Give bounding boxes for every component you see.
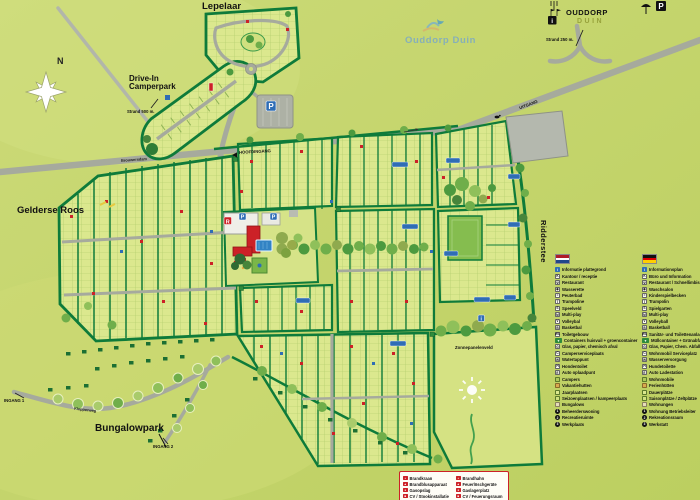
fire-legend-german: + Brandhahn ▲ Feuerlöschgeräte ● Gaslage… bbox=[456, 475, 505, 499]
legend-items-dutch: i Informatie plattegrond K Kantoor / rec… bbox=[555, 267, 641, 428]
lepelaar-green-island bbox=[241, 33, 265, 51]
fire-legend-item: ▲ Brandblusapparaat bbox=[403, 481, 452, 487]
legend-item-icon: S bbox=[642, 306, 647, 311]
legend-item-icon: M bbox=[555, 312, 560, 317]
legend-item-icon: T bbox=[555, 299, 560, 304]
legend-item: WC Sanitär- und Toilettenanlage bbox=[642, 331, 700, 337]
info-black-icon: i bbox=[548, 16, 557, 25]
legend-item-label: Trampolin bbox=[649, 299, 669, 304]
legend-item-label: Camperserviceplaats bbox=[562, 351, 604, 356]
fire-legend-icon: + bbox=[456, 476, 461, 481]
svg-text:P: P bbox=[241, 215, 245, 221]
legend-item-icon: H bbox=[555, 364, 560, 369]
legend-item-icon: E bbox=[642, 370, 647, 375]
sun-icon bbox=[459, 377, 485, 403]
campsite-map: P P P R i i P bbox=[0, 0, 700, 500]
brand-watermark: Ouddorp Duin bbox=[405, 36, 476, 46]
legend-item: 3 Werkplaats bbox=[555, 421, 641, 427]
legend-item-icon: T bbox=[642, 299, 647, 304]
legend-item-icon: S bbox=[555, 306, 560, 311]
legend-item-label: Büro und Information bbox=[649, 274, 691, 279]
fire-legend-icon: ■ bbox=[403, 494, 408, 499]
legend-item: G Glas, Papier, Chem. Abfall bbox=[642, 344, 700, 350]
area-label-camperpark: Drive-In Camperpark bbox=[129, 75, 176, 92]
parking-black-icon: P bbox=[656, 1, 666, 11]
legend-item-label: Hondentoilet bbox=[562, 364, 587, 369]
entrance1-label: INGANG 1 bbox=[4, 399, 24, 403]
legend-item-label: Kinderspielbecken bbox=[649, 293, 686, 298]
legend-item: ▼ Müllcontainer + Grünabfall bbox=[642, 337, 700, 343]
legend-item-label: Rekreationsraum bbox=[649, 415, 683, 420]
fire-legend-icon: ▲ bbox=[403, 482, 408, 487]
legend-item-label: Dauerplätze bbox=[649, 390, 673, 395]
area-label-gelderse-roos: Gelderse Roos bbox=[17, 206, 84, 216]
legend-item-label: Volleyball bbox=[649, 319, 668, 324]
legend-item-label: Saisonplätze / Zeltplätze bbox=[649, 396, 697, 401]
legend-item-icon: 1 bbox=[555, 409, 560, 414]
legend-item-icon: C bbox=[555, 351, 560, 356]
parking-glyph: P bbox=[268, 102, 274, 111]
legend-item-icon: K bbox=[555, 274, 560, 279]
legend-item-label: Ferienhütten bbox=[649, 383, 674, 388]
legend-item: 3 Werkstatt bbox=[642, 421, 700, 427]
swimming-pool bbox=[256, 240, 272, 251]
legend-item-icon: B bbox=[642, 325, 647, 330]
legend-item-label: Basketbal bbox=[562, 325, 582, 330]
park-name-top: OUDDORP bbox=[566, 9, 608, 17]
legend-item-icon: 3 bbox=[642, 422, 647, 427]
legend-item-label: Toiletgebouw bbox=[562, 332, 588, 337]
legend-item-icon bbox=[555, 396, 560, 401]
legend-item: ▼ Containers huisvuil + groencontainer bbox=[555, 337, 641, 343]
legend-item-label: Wasserette bbox=[562, 287, 584, 292]
legend-item-label: Werkstatt bbox=[649, 422, 668, 427]
roundabout bbox=[246, 64, 257, 75]
fire-legend-label: Brandhahn bbox=[463, 476, 485, 481]
legend-item-label: Basketball bbox=[649, 325, 670, 330]
legend-item-label: Kantoor / receptie bbox=[562, 274, 597, 279]
fire-legend-label: Brandblusapparaat bbox=[410, 482, 447, 487]
legend-item-label: Hundetoilette bbox=[649, 364, 676, 369]
legend-item: Saisonplätze / Zeltplätze bbox=[642, 395, 700, 401]
legend-item-label: Multi-play bbox=[562, 312, 581, 317]
reception-icon-map: R bbox=[224, 217, 232, 225]
park-name-bottom: DUIN bbox=[577, 18, 604, 25]
legend-item-label: Seizoenplaatsen / kampeerplaats bbox=[562, 396, 627, 401]
legend-item-icon bbox=[642, 396, 647, 401]
legend-item-label: Peuterbad bbox=[562, 293, 582, 298]
legend-item-icon: i bbox=[555, 267, 560, 272]
fire-legend-item: ■ CV / Stookinstallatie bbox=[403, 493, 452, 499]
fire-legend-item: ■ CV / Feuerungsraum bbox=[456, 493, 505, 499]
legend-item-icon bbox=[555, 383, 560, 388]
legend-item-icon: 2 bbox=[555, 415, 560, 420]
beach-distance-500-label: Strand 500 m. bbox=[127, 110, 154, 114]
legend-item-label: Auto Ladestation bbox=[649, 370, 683, 375]
legend-item-label: Watertappunt bbox=[562, 357, 589, 362]
legend-item-label: Containers huisvuil + groencontainer bbox=[564, 338, 637, 343]
legend-item-label: Wasserversorgung bbox=[649, 357, 687, 362]
legend-item-icon: WC bbox=[642, 332, 647, 337]
legend-item-icon: ◉ bbox=[555, 287, 560, 292]
area-label-solar-field: Zonnepanelenveld bbox=[455, 346, 493, 351]
legend-item-icon: 3 bbox=[555, 422, 560, 427]
legend-item-label: Informatie plattegrond bbox=[562, 267, 606, 272]
legend-item-label: Wohnung Betriebsleiter bbox=[649, 409, 696, 414]
legend-items-german: i Informationsplan K Büro und Informatio… bbox=[642, 267, 700, 428]
legend-item-label: Müllcontainer + Grünabfall bbox=[651, 338, 700, 343]
parking-area-ne bbox=[506, 111, 568, 163]
svg-text:P: P bbox=[272, 215, 276, 221]
legend-item-label: Speelveld bbox=[562, 306, 581, 311]
legend-item-label: Spielgarten bbox=[649, 306, 672, 311]
legend-item-label: Beheerderswoning bbox=[562, 409, 599, 414]
legend-item-label: Sanitär- und Toilettenanlage bbox=[649, 332, 700, 337]
legend-dutch: i Informatie plattegrond K Kantoor / rec… bbox=[555, 254, 641, 427]
legend-item-icon bbox=[642, 402, 647, 407]
legend-item-icon: B bbox=[555, 325, 560, 330]
legend-item-icon: 2 bbox=[642, 415, 647, 420]
legend-item-label: Restaurant bbox=[562, 280, 584, 285]
legend-item-icon: Ψ bbox=[555, 280, 560, 285]
fire-safety-legend: + Brandkraan ▲ Brandblusapparaat ● Gasop… bbox=[399, 471, 509, 500]
legend-item-icon: ≈ bbox=[555, 293, 560, 298]
legend-item-icon bbox=[555, 402, 560, 407]
area-label-ridderstee: Ridderstee bbox=[539, 220, 547, 263]
legend-item-label: Volleybal bbox=[562, 319, 580, 324]
compass-north-label: N bbox=[57, 57, 64, 66]
legend-item-icon: K bbox=[642, 274, 647, 279]
fire-legend-icon: ● bbox=[403, 488, 408, 493]
legend-item-icon: WC bbox=[555, 332, 560, 337]
area-label-bungalowpark: Bungalowpark bbox=[95, 424, 164, 435]
legend-item-label: Informationsplan bbox=[649, 267, 683, 272]
legend-item-icon bbox=[642, 390, 647, 395]
legend-item-icon: Ψ bbox=[642, 280, 647, 285]
fire-legend-label: Gaslagerplatz bbox=[463, 488, 490, 493]
legend-item: K Büro und Information bbox=[642, 273, 700, 279]
entrance2-label: INGANG 2 bbox=[153, 445, 173, 449]
fire-legend-label: CV / Feuerungsraum bbox=[463, 494, 503, 499]
legend-item-label: Auto oplaadpunt bbox=[562, 370, 595, 375]
legend-item-icon: ≈ bbox=[642, 293, 647, 298]
legend-item-icon: ▼ bbox=[642, 338, 649, 343]
fire-legend-label: Feuerlöschgeräte bbox=[463, 482, 497, 487]
legend-item-icon: G bbox=[642, 344, 647, 349]
legend-item-icon: V bbox=[642, 319, 647, 324]
legend-item-label: Waschsalon bbox=[649, 287, 673, 292]
info-icon-map: i bbox=[478, 315, 485, 323]
legend-item-icon bbox=[555, 390, 560, 395]
legend-item-icon: M bbox=[642, 312, 647, 317]
legend-item-icon: V bbox=[555, 319, 560, 324]
fire-legend-label: CV / Stookinstallatie bbox=[410, 494, 449, 499]
parking-icon-facilities-2: P bbox=[270, 213, 277, 221]
legend-item-icon bbox=[642, 383, 647, 388]
legend-german: i Informationsplan K Büro und Informatio… bbox=[642, 254, 700, 427]
netherlands-flag-icon bbox=[555, 254, 570, 264]
svg-text:R: R bbox=[226, 219, 230, 225]
legend-item-icon: ▼ bbox=[555, 338, 562, 343]
fire-legend-icon: + bbox=[403, 476, 408, 481]
svg-text:i: i bbox=[551, 18, 553, 25]
legend-item-label: Wohnungen bbox=[649, 402, 673, 407]
legend-item-icon: C bbox=[642, 351, 647, 356]
legend-item-label: Trampoline bbox=[562, 299, 584, 304]
legend-item-icon: W bbox=[642, 357, 647, 362]
beach-distance-250-label: Strand 250 m. bbox=[546, 38, 573, 42]
legend-item-label: Campers bbox=[562, 377, 580, 382]
legend-item-icon: 1 bbox=[642, 409, 647, 414]
parking-lot bbox=[257, 95, 293, 128]
legend-item-icon: ◉ bbox=[642, 287, 647, 292]
legend-item-icon: i bbox=[642, 267, 647, 272]
legend-item: 1 Wohnung Betriebsleiter bbox=[642, 408, 700, 414]
legend-item-label: Bungalows bbox=[562, 402, 584, 407]
legend-item-label: Multi-play bbox=[649, 312, 668, 317]
legend-item-icon: E bbox=[555, 370, 560, 375]
legend-item-label: Wohnmobile bbox=[649, 377, 674, 382]
legend-item-label: Recreatieruimte bbox=[562, 415, 593, 420]
legend-item-label: Glas, Papier, Chem. Abfall bbox=[649, 344, 700, 349]
legend-item-label: Jaarplaatsen bbox=[562, 390, 587, 395]
parking-icon-main: P bbox=[266, 101, 276, 111]
fire-legend-label: Gasopslag bbox=[410, 488, 431, 493]
legend-item-label: Werkplaats bbox=[562, 422, 584, 427]
fire-legend-label: Brandkraan bbox=[410, 476, 433, 481]
legend-item-label: Glas, papier, chemisch afval bbox=[562, 344, 618, 349]
area-label-lepelaar: Lepelaar bbox=[202, 2, 241, 12]
fire-legend-dutch: + Brandkraan ▲ Brandblusapparaat ● Gasop… bbox=[403, 475, 452, 499]
legend-item-icon bbox=[555, 377, 560, 382]
legend-item-label: Restaurant / Schnellimbiss bbox=[649, 280, 700, 285]
legend-item-label: Wohnmobil Serviceplatz bbox=[649, 351, 697, 356]
legend-item-icon: W bbox=[555, 357, 560, 362]
legend-item-icon: G bbox=[555, 344, 560, 349]
legend-item-icon bbox=[642, 377, 647, 382]
parking-icon-facilities-1: P bbox=[239, 213, 246, 221]
legend-item: C Wohnmobil Serviceplatz bbox=[642, 350, 700, 356]
legend-item-label: Vakantiehutten bbox=[562, 383, 592, 388]
germany-flag-icon bbox=[642, 254, 657, 264]
fire-legend-icon: ▲ bbox=[456, 482, 461, 487]
fire-legend-icon: ● bbox=[456, 488, 461, 493]
legend-item: Ψ Restaurant / Schnellimbiss bbox=[642, 279, 700, 285]
svg-text:P: P bbox=[658, 2, 664, 11]
legend-item-icon: H bbox=[642, 364, 647, 369]
fire-legend-icon: ■ bbox=[456, 494, 461, 499]
